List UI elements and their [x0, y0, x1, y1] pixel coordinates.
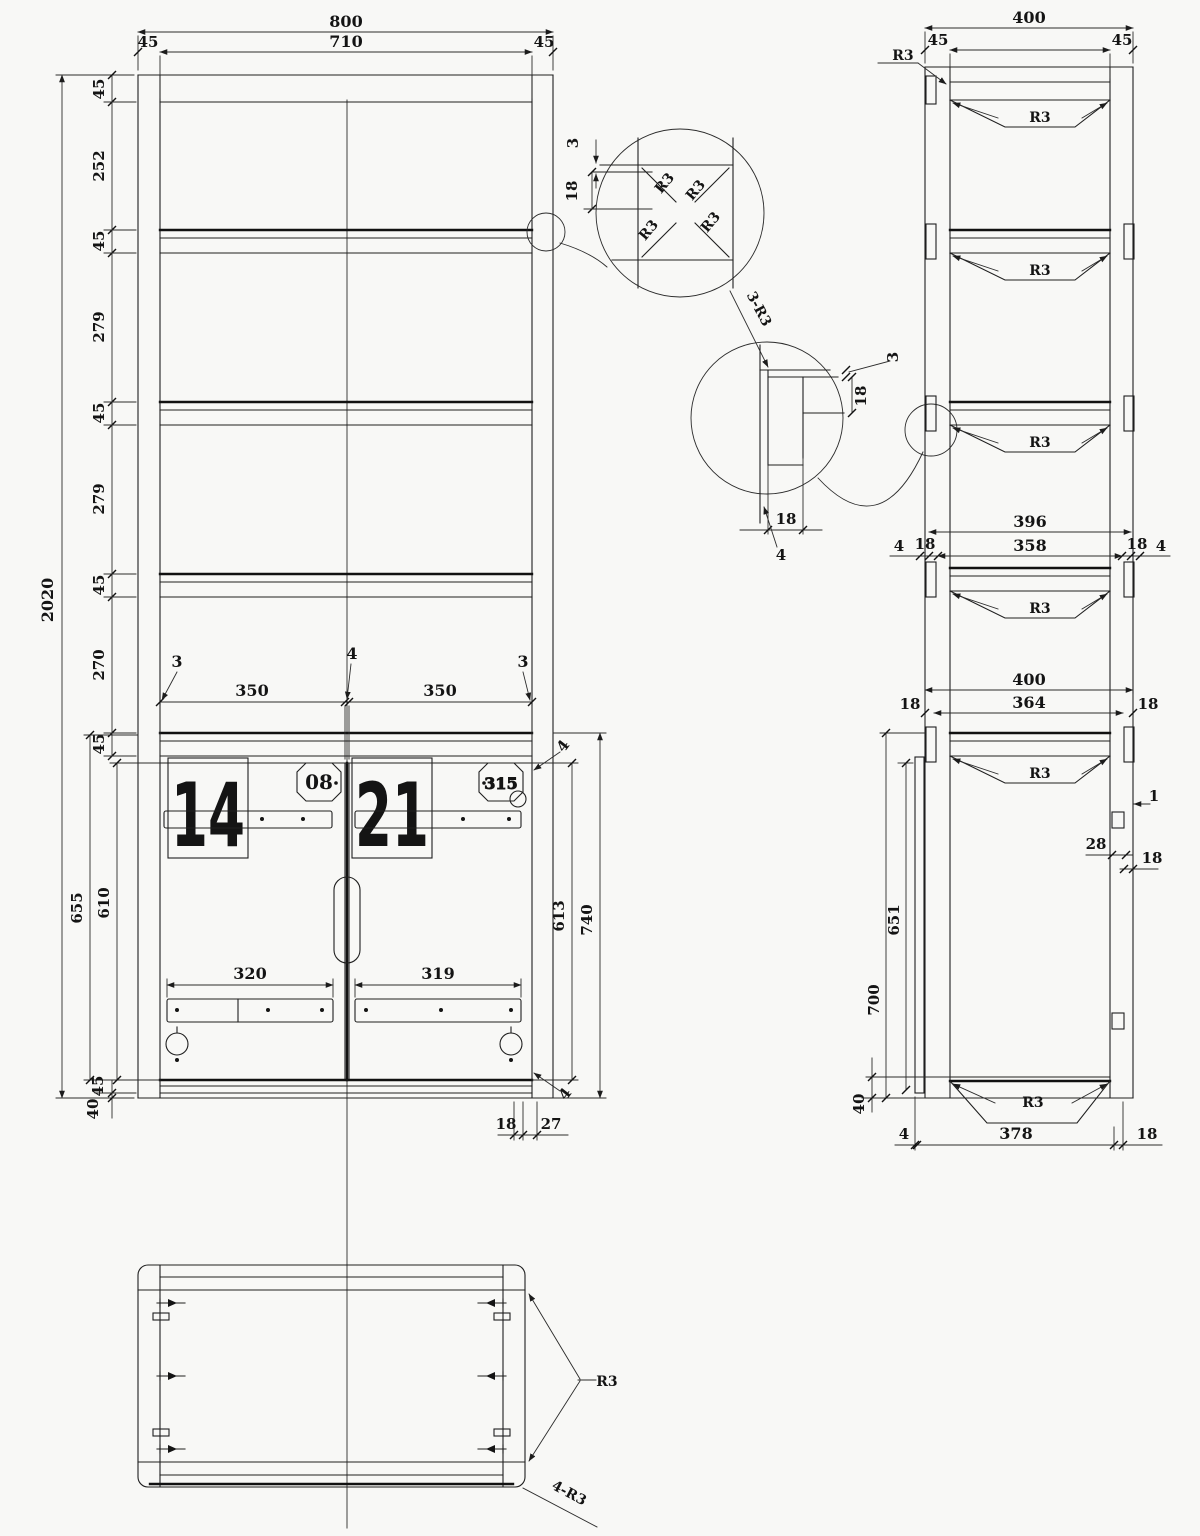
dim-side-width-total: 400 [1012, 8, 1045, 27]
front-view: 14 21 08 315 [138, 75, 553, 1098]
detail2-dim-18-bottom: 18 [776, 510, 797, 528]
shelf-r3-2: R3 [1029, 435, 1050, 451]
dim-chain-4: 45 [90, 403, 108, 424]
dim-door-right-inner: 613 [550, 900, 568, 931]
dim-plate-left: 320 [233, 964, 266, 983]
detail-view-corner: R3 R3 R3 R3 3 18 [563, 129, 764, 297]
door-number-right: 21 [355, 764, 429, 867]
shelf-pin-hole-upper [1112, 812, 1124, 828]
dim-side-g18l: 18 [915, 535, 936, 553]
shelf-support-tab [926, 76, 936, 104]
dim-plate-right: 319 [421, 964, 454, 983]
dim-side-corner-r3: R3 [892, 48, 913, 64]
hinge-plate-lower-right [355, 999, 521, 1022]
side-dimensions: 400 45 45 R3 396 358 4 18 18 4 400 364 1… [850, 8, 1170, 1150]
cad-drawing-sheet: 14 21 08 315 800 [0, 0, 1200, 1536]
dim-side-g18l2: 18 [900, 695, 921, 713]
dim-chain-6: 45 [90, 575, 108, 596]
dim-door-right-outer: 740 [578, 904, 596, 935]
dim-side-400b: 400 [1012, 670, 1045, 689]
shelf-r3-3: R3 [1029, 601, 1050, 617]
side-shelf-1: R3 [926, 224, 1134, 280]
dim-chain-7: 270 [90, 649, 108, 680]
side-view: R3 R3 R3 R3 [915, 67, 1134, 1123]
plan-r3-label: R3 [596, 1374, 617, 1390]
dim-chain-5: 279 [90, 483, 108, 514]
dim-door-gap-right: 3 [517, 652, 528, 671]
dim-side-b18: 18 [1137, 1125, 1158, 1143]
dim-side-40: 40 [850, 1094, 868, 1115]
side-shelf-4: R3 [926, 727, 1134, 783]
door-number-left: 14 [171, 764, 245, 867]
plan-view: R3 4-R3 [138, 1265, 618, 1527]
detail-reference-circle [527, 213, 565, 251]
side-shelf-3: R3 [926, 562, 1134, 618]
shelf-pin-hole-lower [1112, 1013, 1124, 1029]
dim-front-height-total: 2020 [38, 578, 57, 623]
dim-front-width-total: 800 [329, 12, 362, 31]
shelf-band-1 [160, 230, 532, 253]
door-knob-right [500, 1027, 522, 1062]
dim-bottom-27: 27 [541, 1115, 562, 1133]
detail1-r3-b: R3 [683, 177, 709, 204]
side-base: R3 [925, 1077, 1133, 1123]
dim-side-g18r2: 18 [1138, 695, 1159, 713]
shelf-band-4 [160, 733, 532, 756]
dim-front-stile-right: 45 [534, 33, 555, 51]
detail-reference-circle-side [905, 404, 957, 456]
dim-side-stile-right: 45 [1112, 31, 1133, 49]
side-shelf-2: R3 [926, 396, 1134, 452]
dim-side-651: 651 [885, 904, 903, 935]
detail1-r3-d: R3 [698, 209, 724, 236]
shelf-band-2 [160, 402, 532, 425]
dim-side-stile-left: 45 [928, 31, 949, 49]
fastener-symbols-left [153, 1299, 185, 1453]
shelf-r3-1: R3 [1029, 263, 1050, 279]
dim-door-area-outer: 655 [68, 892, 86, 923]
detail2-dim-3: 3 [884, 352, 902, 362]
dim-chain-1: 252 [90, 150, 108, 181]
drawing-canvas: 14 21 08 315 800 [0, 0, 1200, 1536]
dim-side-g4l: 4 [894, 537, 904, 555]
front-dimensions: 800 710 45 45 2020 45 252 45 279 45 279 … [38, 12, 607, 1140]
dim-door-gap-mid: 4 [346, 644, 357, 663]
dim-side-364: 364 [1012, 693, 1045, 712]
detail1-dim-3: 3 [564, 138, 582, 148]
detail2-dim-18-side: 18 [852, 386, 870, 407]
shelf-r3-0: R3 [1029, 110, 1050, 126]
detail1-dim-18: 18 [563, 181, 581, 202]
dim-chain-2: 45 [90, 231, 108, 252]
dim-door-gap-left: 3 [171, 652, 182, 671]
fastener-symbols-right [478, 1299, 510, 1453]
dim-side-396: 396 [1013, 512, 1046, 531]
callout-3r3: 3-R3 [730, 289, 774, 367]
shelf-r3-4: R3 [1029, 766, 1050, 782]
dim-side-g4r: 4 [1156, 537, 1166, 555]
callout-3r3-label: 3-R3 [743, 289, 774, 329]
detail-view-edge: 3 18 18 4 [691, 342, 957, 564]
dim-door-width-left: 350 [235, 681, 268, 700]
dim-side-358: 358 [1013, 536, 1046, 555]
dim-door-width-right: 350 [423, 681, 456, 700]
dim-door-gap-bottom: 4 [555, 1084, 576, 1103]
dim-chain-0: 45 [90, 79, 108, 100]
dim-chain-3: 279 [90, 311, 108, 342]
dim-side-b378: 378 [999, 1124, 1032, 1143]
dim-front-width-inner: 710 [329, 32, 362, 51]
dim-side-1: 1 [1149, 787, 1159, 805]
shelf-r3-5: R3 [1022, 1095, 1043, 1111]
dim-side-700: 700 [865, 984, 883, 1015]
dim-bottom-18: 18 [496, 1115, 517, 1133]
dim-chain-8: 45 [90, 734, 108, 755]
dim-side-g18r: 18 [1127, 535, 1148, 553]
badge-left: 08 [297, 763, 341, 801]
badge-right: 315 [479, 763, 526, 807]
dim-base-45: 45 [89, 1076, 107, 1097]
dim-front-stile-left: 45 [138, 33, 159, 51]
dim-door-gap-top: 4 [553, 736, 574, 755]
dim-side-28: 28 [1086, 835, 1107, 853]
detail1-r3-a: R3 [652, 170, 678, 197]
side-door-panel [915, 757, 924, 1093]
door-knob-left [166, 1027, 188, 1062]
badge-left-number: 08 [305, 770, 333, 794]
detail2-dim-4: 4 [776, 546, 786, 564]
detail1-r3-c: R3 [636, 217, 662, 244]
dim-side-b4: 4 [899, 1125, 909, 1143]
dim-base-40: 40 [84, 1099, 102, 1120]
hinge-plate-lower-left [167, 999, 333, 1022]
dim-side-18r: 18 [1142, 849, 1163, 867]
shelf-band-3 [160, 574, 532, 597]
dim-door-height: 610 [95, 887, 113, 918]
badge-right-number: 315 [484, 774, 517, 793]
